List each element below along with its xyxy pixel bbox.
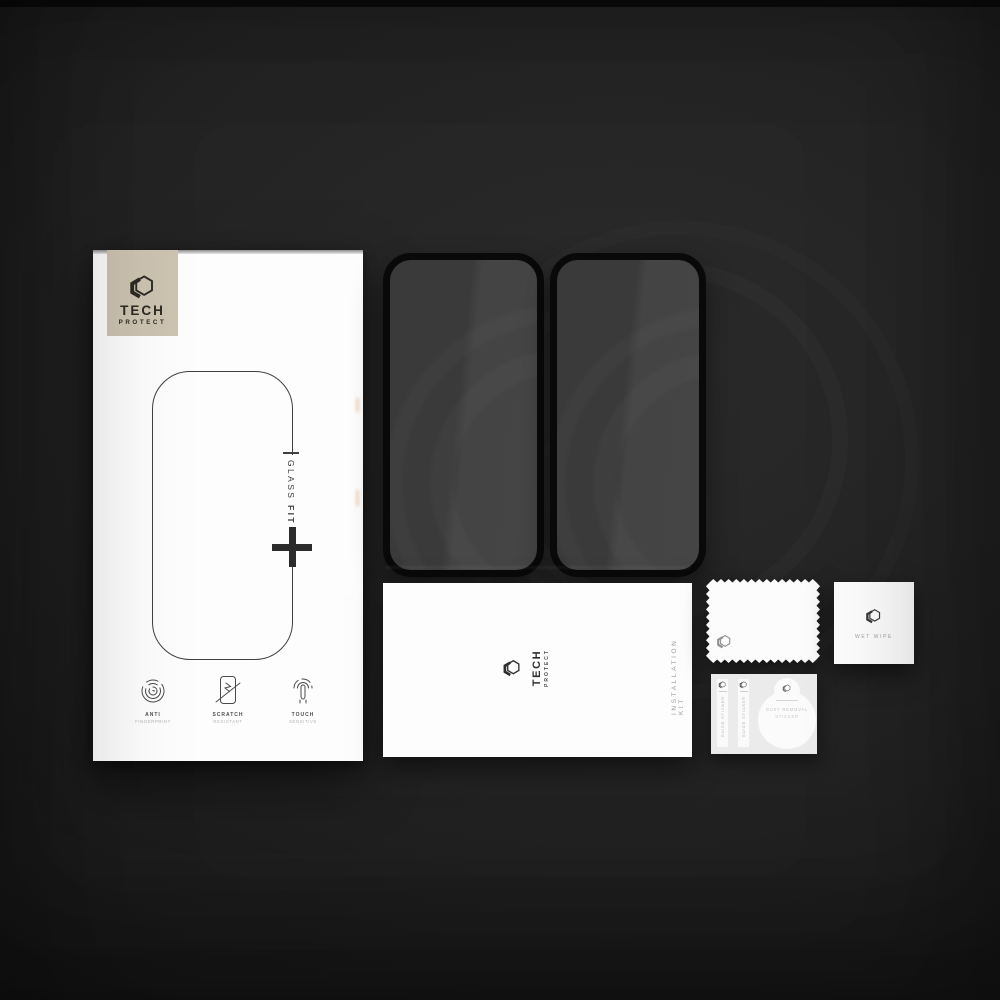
brand-hexagon-icon bbox=[128, 274, 158, 301]
fingerprint-icon bbox=[138, 674, 168, 708]
feature-sublabel: FINGERPRINT bbox=[121, 719, 185, 724]
brand-subname: PROTECT bbox=[119, 319, 167, 326]
product-name-label: GLASS FIT bbox=[284, 460, 298, 525]
feature-label: TOUCH bbox=[271, 712, 335, 718]
feature-label: SCRATCH bbox=[196, 712, 260, 718]
feature-sublabel: RESISTANT bbox=[196, 719, 260, 724]
glass-reflection bbox=[557, 260, 699, 570]
box-edge-reflection bbox=[356, 398, 359, 412]
wet-wipe-label: WET WIPE bbox=[855, 634, 893, 640]
microfiber-cloth bbox=[706, 579, 824, 669]
tempered-glass-2 bbox=[550, 253, 706, 577]
installation-kit-label: INSTALLATION KIT bbox=[671, 629, 685, 715]
sticker-divider bbox=[740, 691, 748, 692]
dust-sticker-label-2: STICKER bbox=[757, 714, 817, 719]
glass-reflection bbox=[390, 260, 537, 570]
guide-sticker-2: GUIDE STICKER bbox=[737, 678, 750, 748]
phone-outline bbox=[152, 371, 293, 660]
scratch-shield-icon bbox=[214, 674, 242, 708]
fit-word: FIT bbox=[286, 505, 296, 525]
kit-brand-logo: TECH PROTECT bbox=[502, 645, 554, 691]
sticker-divider bbox=[719, 691, 727, 692]
wet-wipe-packet: WET WIPE bbox=[834, 582, 914, 664]
sticker-hexagon-icon bbox=[718, 681, 727, 689]
outline-tick bbox=[283, 452, 299, 454]
wipe-hexagon-icon bbox=[865, 608, 883, 625]
feature-label: ANTI bbox=[121, 712, 185, 718]
guide-sticker-1: GUIDE STICKER bbox=[716, 678, 729, 748]
feature-anti-fingerprint: ANTI FINGERPRINT bbox=[121, 674, 185, 724]
product-photo-scene: TECH PROTECT GLASS FIT ANTI bbox=[0, 0, 1000, 1000]
glass-word: GLASS bbox=[286, 460, 296, 500]
brand-subname: PROTECT bbox=[545, 649, 550, 687]
dust-sticker-label-1: DUST REMOVAL bbox=[757, 707, 817, 712]
brand-hexagon-icon bbox=[502, 659, 523, 678]
installation-kit-envelope: TECH PROTECT INSTALLATION KIT bbox=[383, 583, 692, 757]
brand-name: TECH bbox=[532, 650, 543, 686]
sticker-hexagon-icon bbox=[739, 681, 748, 689]
brand-name: TECH bbox=[120, 303, 165, 318]
feature-touch-sensitive: TOUCH SENSITIVE bbox=[271, 674, 335, 724]
kit-brand-rotated: TECH PROTECT bbox=[528, 645, 554, 691]
feature-sublabel: SENSITIVE bbox=[271, 719, 335, 724]
feature-icons-row: ANTI FINGERPRINT SCRATCH RESISTANT bbox=[121, 674, 335, 724]
guide-sticker-label: GUIDE STICKER bbox=[721, 696, 725, 737]
surface-reflection-line bbox=[385, 566, 691, 569]
sticker-hexagon-icon bbox=[782, 684, 792, 693]
tempered-glass-1 bbox=[383, 253, 544, 577]
brand-logo-panel: TECH PROTECT bbox=[107, 250, 178, 336]
guide-sticker-label: GUIDE STICKER bbox=[742, 696, 746, 737]
box-edge-reflection bbox=[356, 490, 359, 506]
feature-scratch-resistant: SCRATCH RESISTANT bbox=[196, 674, 260, 724]
cloth-hexagon-icon bbox=[716, 634, 733, 650]
microfiber-cloth-shape bbox=[706, 579, 820, 663]
touch-icon bbox=[288, 674, 318, 708]
retail-box: TECH PROTECT GLASS FIT ANTI bbox=[93, 250, 363, 761]
plus-icon bbox=[272, 527, 312, 567]
sticker-divider bbox=[776, 700, 798, 701]
sticker-sheet: GUIDE STICKER GUIDE STICKER DUST REMOVAL… bbox=[711, 674, 817, 754]
dust-removal-sticker: DUST REMOVAL STICKER bbox=[757, 677, 817, 751]
